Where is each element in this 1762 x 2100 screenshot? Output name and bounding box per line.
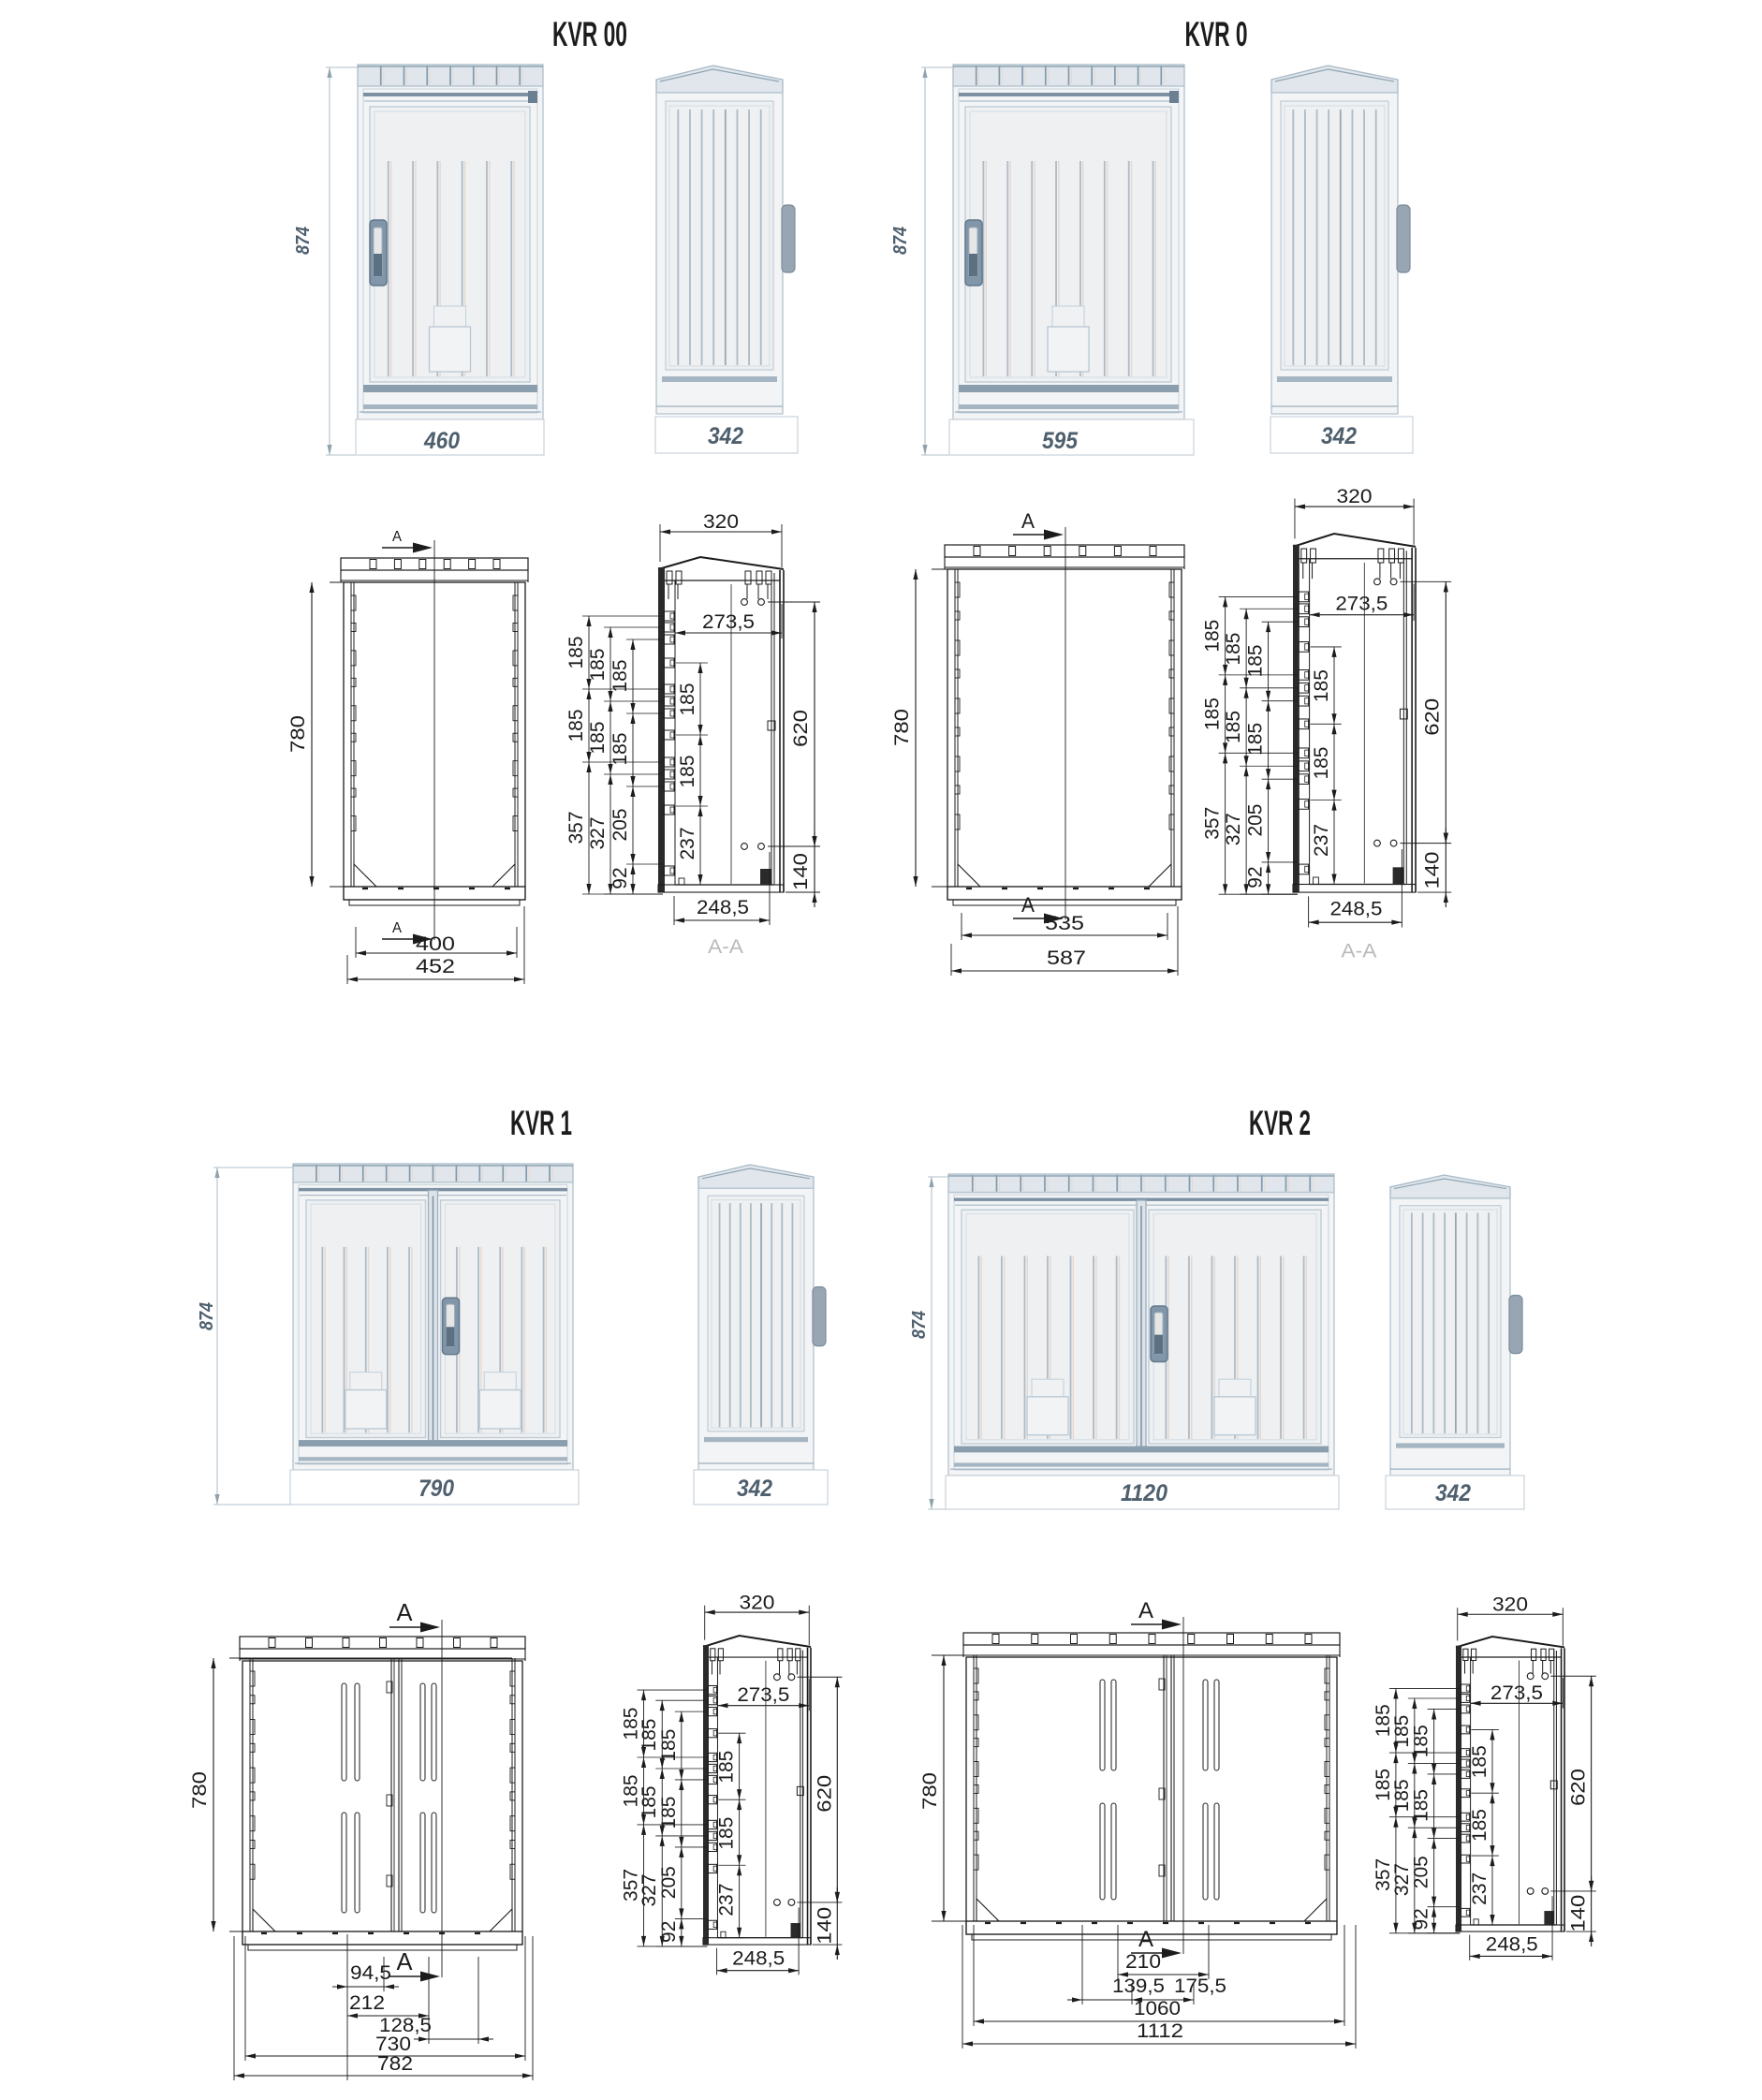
svg-text:92: 92 xyxy=(1245,866,1267,888)
svg-text:185: 185 xyxy=(716,1817,738,1850)
svg-text:237: 237 xyxy=(1311,824,1332,857)
svg-text:1112: 1112 xyxy=(1137,2020,1183,2042)
svg-text:185: 185 xyxy=(1411,1789,1432,1822)
svg-text:357: 357 xyxy=(565,811,587,844)
svg-text:185: 185 xyxy=(716,1751,738,1784)
svg-text:185: 185 xyxy=(1411,1725,1432,1757)
svg-text:790: 790 xyxy=(418,1476,454,1502)
svg-text:874: 874 xyxy=(293,227,314,255)
svg-text:KVR 0: KVR 0 xyxy=(1185,15,1248,53)
svg-text:92: 92 xyxy=(658,1921,680,1943)
svg-text:A: A xyxy=(392,920,402,936)
svg-text:400: 400 xyxy=(416,933,455,955)
svg-text:185: 185 xyxy=(1223,711,1244,743)
svg-text:185: 185 xyxy=(565,636,587,668)
svg-text:185: 185 xyxy=(658,1796,680,1828)
svg-text:452: 452 xyxy=(416,956,455,977)
svg-text:140: 140 xyxy=(1422,852,1444,889)
svg-text:185: 185 xyxy=(639,1719,660,1752)
svg-text:185: 185 xyxy=(1202,698,1224,730)
svg-text:185: 185 xyxy=(1311,747,1332,780)
svg-text:185: 185 xyxy=(1223,633,1244,666)
svg-text:237: 237 xyxy=(1469,1872,1490,1905)
svg-text:237: 237 xyxy=(716,1884,738,1916)
svg-text:320: 320 xyxy=(1492,1594,1528,1616)
svg-text:140: 140 xyxy=(814,1907,835,1945)
svg-text:342: 342 xyxy=(1435,1480,1471,1506)
svg-text:KVR 1: KVR 1 xyxy=(510,1104,572,1142)
svg-text:587: 587 xyxy=(1047,947,1086,969)
svg-text:620: 620 xyxy=(814,1775,835,1813)
svg-text:185: 185 xyxy=(677,683,698,715)
svg-text:620: 620 xyxy=(790,710,812,747)
svg-text:185: 185 xyxy=(1311,669,1332,702)
svg-text:185: 185 xyxy=(609,732,631,765)
svg-text:237: 237 xyxy=(677,827,698,859)
svg-text:248,5: 248,5 xyxy=(732,1947,785,1969)
svg-text:327: 327 xyxy=(639,1873,660,1906)
svg-text:185: 185 xyxy=(609,659,631,692)
svg-text:185: 185 xyxy=(1469,1745,1490,1778)
svg-text:94,5: 94,5 xyxy=(350,1962,391,1984)
svg-text:185: 185 xyxy=(1391,1779,1413,1812)
svg-text:535: 535 xyxy=(1045,913,1084,934)
svg-text:185: 185 xyxy=(1245,644,1267,677)
svg-text:140: 140 xyxy=(1568,1895,1590,1932)
svg-text:320: 320 xyxy=(703,511,739,533)
svg-text:185: 185 xyxy=(677,755,698,787)
svg-text:A-A: A-A xyxy=(708,936,743,958)
svg-text:273,5: 273,5 xyxy=(1335,593,1388,614)
svg-text:139,5: 139,5 xyxy=(1112,1975,1165,1997)
svg-text:780: 780 xyxy=(919,1772,941,1810)
svg-text:320: 320 xyxy=(1337,486,1373,507)
svg-text:780: 780 xyxy=(189,1771,211,1809)
svg-text:342: 342 xyxy=(708,423,743,449)
svg-text:273,5: 273,5 xyxy=(1490,1682,1543,1704)
svg-text:248,5: 248,5 xyxy=(1486,1933,1538,1955)
svg-text:595: 595 xyxy=(1042,428,1079,454)
svg-text:185: 185 xyxy=(1202,620,1224,653)
svg-text:327: 327 xyxy=(587,816,609,849)
svg-text:874: 874 xyxy=(197,1302,217,1330)
svg-text:185: 185 xyxy=(587,648,609,681)
svg-text:620: 620 xyxy=(1568,1769,1590,1806)
svg-text:A: A xyxy=(397,1947,414,1975)
svg-text:175,5: 175,5 xyxy=(1174,1975,1226,1997)
svg-text:140: 140 xyxy=(790,853,812,890)
svg-text:185: 185 xyxy=(639,1785,660,1818)
svg-text:248,5: 248,5 xyxy=(1329,899,1382,920)
svg-text:185: 185 xyxy=(587,721,609,754)
svg-text:780: 780 xyxy=(891,709,913,746)
svg-text:205: 205 xyxy=(658,1866,680,1899)
svg-text:205: 205 xyxy=(1411,1856,1432,1888)
svg-text:357: 357 xyxy=(1202,807,1224,840)
svg-text:273,5: 273,5 xyxy=(737,1684,789,1706)
svg-text:327: 327 xyxy=(1223,813,1244,845)
svg-text:460: 460 xyxy=(423,428,460,454)
svg-text:1060: 1060 xyxy=(1134,1998,1181,2019)
svg-text:780: 780 xyxy=(287,715,309,753)
svg-text:210: 210 xyxy=(1125,1951,1161,1973)
svg-text:327: 327 xyxy=(1391,1863,1413,1896)
svg-text:730: 730 xyxy=(375,2034,411,2055)
svg-text:273,5: 273,5 xyxy=(702,611,755,633)
svg-text:A: A xyxy=(392,529,402,545)
svg-text:92: 92 xyxy=(1411,1908,1432,1930)
svg-text:1120: 1120 xyxy=(1121,1480,1167,1506)
svg-text:205: 205 xyxy=(1245,803,1267,836)
svg-text:A: A xyxy=(1138,1598,1153,1623)
svg-text:KVR 2: KVR 2 xyxy=(1249,1104,1311,1142)
svg-text:185: 185 xyxy=(1391,1715,1413,1748)
svg-text:A: A xyxy=(1021,893,1035,917)
svg-text:342: 342 xyxy=(1321,423,1357,449)
svg-text:248,5: 248,5 xyxy=(697,897,749,918)
svg-text:A: A xyxy=(1138,1927,1153,1952)
svg-text:A: A xyxy=(397,1598,414,1626)
svg-text:342: 342 xyxy=(737,1476,772,1502)
svg-text:185: 185 xyxy=(1469,1809,1490,1842)
svg-text:874: 874 xyxy=(890,227,911,255)
svg-text:620: 620 xyxy=(1422,698,1444,736)
svg-text:185: 185 xyxy=(565,709,587,742)
svg-text:874: 874 xyxy=(909,1311,930,1339)
svg-text:92: 92 xyxy=(609,867,631,888)
svg-text:205: 205 xyxy=(609,808,631,841)
svg-text:KVR 00: KVR 00 xyxy=(552,15,627,53)
svg-text:A-A: A-A xyxy=(1341,941,1376,962)
svg-text:185: 185 xyxy=(658,1729,680,1762)
svg-text:320: 320 xyxy=(739,1592,774,1613)
svg-text:185: 185 xyxy=(1245,723,1267,756)
svg-text:212: 212 xyxy=(349,1992,385,2014)
svg-text:782: 782 xyxy=(377,2053,413,2075)
svg-text:A: A xyxy=(1021,509,1035,533)
